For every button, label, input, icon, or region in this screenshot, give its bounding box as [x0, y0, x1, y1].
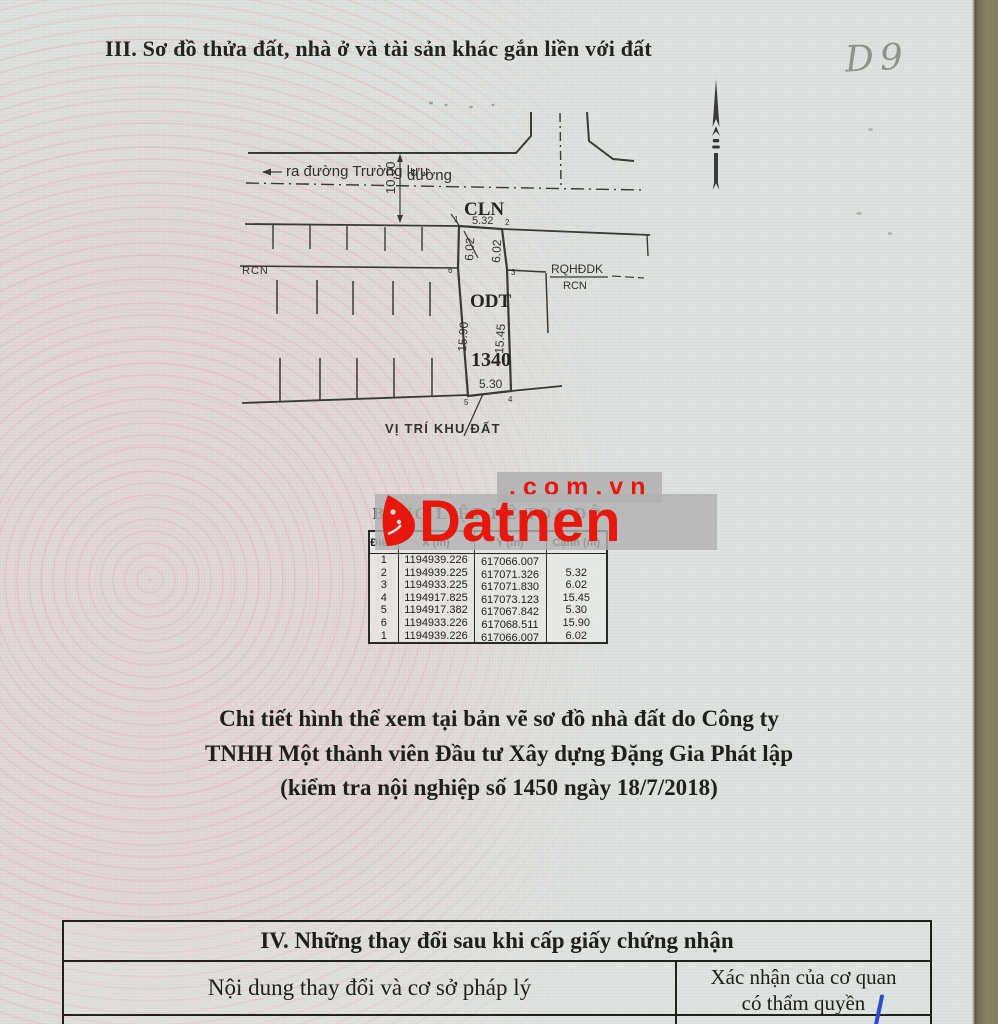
- cell-edge: 15.90: [546, 617, 607, 630]
- lot-row-top-line: [245, 224, 650, 235]
- dimension-arrow-up: [397, 154, 403, 162]
- boundary-continuation: [612, 276, 644, 278]
- table-row: 61194933.226617068.51115.90: [369, 617, 607, 630]
- edge-upper-left-dimension: 6.02: [462, 237, 477, 261]
- north-arrow-icon: [712, 79, 720, 190]
- zone-rcn-right-label: RCN: [563, 280, 587, 292]
- cell-y: 617066.007: [474, 632, 546, 646]
- cell-edge: 15.45: [546, 592, 607, 605]
- edge-top-dimension: 5.32: [472, 215, 493, 227]
- cell-y: 617066.007: [474, 556, 546, 569]
- pencil-speck: [856, 212, 862, 215]
- table-row: 41194917.825617073.12315.45: [369, 592, 607, 605]
- authority-line-2: có thẩm quyền: [677, 991, 930, 1017]
- corner-point-1: 1: [454, 215, 459, 224]
- section-iv-empty-row: [64, 1016, 930, 1024]
- cell-point: 3: [369, 579, 398, 592]
- cell-point: 1: [369, 630, 398, 644]
- table-row: 11194939.226617066.007: [369, 554, 607, 567]
- authority-line-1: Xác nhận của cơ quan: [677, 965, 930, 991]
- pencil-dots: [429, 102, 495, 109]
- paper-sheet: III. Sơ đồ thửa đất, nhà ở và tài sản kh…: [0, 0, 976, 1024]
- corner-point-6: 6: [448, 266, 453, 275]
- road-edge-top: [248, 112, 531, 153]
- corner-point-5: 5: [464, 398, 469, 407]
- section-iv-table: IV. Những thay đổi sau khi cấp giấy chứn…: [62, 920, 932, 1024]
- edge-left-dimension: 15.90: [455, 321, 471, 352]
- zone-rqhddk-label: RQHĐDK: [551, 262, 603, 276]
- watermark-band: Datnen: [375, 494, 717, 550]
- change-content-column-header: Nội dung thay đổi và cơ sở pháp lý: [64, 962, 677, 1014]
- note-line-1: Chi tiết hình thể xem tại bản vẽ sơ đồ n…: [99, 702, 899, 737]
- table-row: 31194933.225617071.8306.02: [369, 579, 607, 592]
- scanned-certificate-page: III. Sơ đồ thửa đất, nhà ở và tài sản kh…: [0, 0, 998, 1024]
- cell-y: 617067.842: [474, 606, 546, 619]
- cell-x: 1194933.226: [398, 617, 474, 630]
- cell-x: 1194933.225: [398, 579, 474, 592]
- cell-point: 2: [369, 567, 398, 580]
- table-row: 21194939.225617071.3265.32: [369, 567, 607, 580]
- cell-edge: [546, 554, 607, 567]
- bottom-boundary-right: [511, 386, 562, 391]
- road-label: đường: [407, 167, 452, 184]
- edge-bottom-dimension: 5.30: [479, 377, 503, 391]
- datnen-logo-icon: [379, 490, 421, 550]
- pencil-speck: [868, 128, 873, 131]
- road-centerline-vertical: [560, 113, 561, 187]
- authority-column-header: Xác nhận của cơ quan có thẩm quyền: [677, 962, 930, 1014]
- cell-y: 617073.123: [474, 594, 546, 607]
- cell-edge: 6.02: [546, 630, 607, 644]
- section-iv-title: IV. Những thay đổi sau khi cấp giấy chứn…: [64, 922, 930, 962]
- dimension-arrow-down: [397, 215, 403, 223]
- cell-y: 617071.326: [474, 569, 546, 582]
- cadastral-diagram: ra đường Trường lưu đường 10.00 CLN 5.32…: [230, 75, 750, 475]
- cell-y: 617071.830: [474, 581, 546, 594]
- exit-arrowhead: [262, 169, 271, 176]
- cell-point: 5: [369, 604, 398, 617]
- scan-background-edge: [977, 0, 998, 1024]
- lot-tick: [647, 235, 648, 256]
- location-label: VỊ TRÍ KHU ĐẤT: [385, 421, 501, 436]
- cell-edge: 5.32: [546, 567, 607, 580]
- note-line-3: (kiểm tra nội nghiệp số 1450 ngày 18/7/2…: [99, 771, 899, 806]
- road-centerline-horizontal: [246, 183, 642, 190]
- cell-x: 1194939.226: [398, 630, 474, 644]
- section-iii-title: III. Sơ đồ thửa đất, nhà ở và tài sản kh…: [105, 36, 652, 62]
- cell-point: 1: [369, 554, 398, 567]
- cell-point: 6: [369, 617, 398, 630]
- note-line-2: TNHH Một thành viên Đầu tư Xây dựng Đặng…: [99, 737, 899, 772]
- zone-odt-label: ODT: [470, 291, 512, 312]
- road-width-dimension: 10.00: [383, 161, 398, 194]
- cell-x: 1194917.825: [398, 592, 474, 605]
- watermark-brand-text: Datnen: [419, 488, 622, 555]
- bottom-boundary-left: [242, 395, 468, 403]
- neighbor-divider-right: [546, 273, 548, 333]
- corner-point-4: 4: [508, 395, 513, 404]
- cell-edge: 6.02: [546, 579, 607, 592]
- corner-point-2: 2: [505, 218, 510, 227]
- road-edge-right: [587, 112, 634, 161]
- rcn-boundary-left: [240, 266, 458, 268]
- datnen-watermark: .com.vn Datnen: [375, 472, 725, 552]
- zone-rcn-left-label: RCN: [242, 265, 269, 277]
- cell-y: 617068.511: [474, 619, 546, 632]
- edge-upper-right-dimension: 6.02: [489, 239, 504, 263]
- cell-x: 1194917.382: [398, 604, 474, 617]
- pencil-speck: [888, 232, 892, 235]
- corner-point-3: 3: [511, 268, 516, 277]
- survey-note: Chi tiết hình thể xem tại bản vẽ sơ đồ n…: [99, 702, 899, 806]
- cell-point: 4: [369, 592, 398, 605]
- cell-x: 1194939.225: [398, 567, 474, 580]
- table-row: 11194939.226617066.0076.02: [369, 630, 607, 644]
- cell-edge: 5.30: [546, 604, 607, 617]
- table-row: 51194917.382617067.8425.30: [369, 604, 607, 617]
- plot-number: 1340: [471, 349, 511, 371]
- cell-x: 1194939.226: [398, 554, 474, 567]
- handwritten-d9-mark: D9: [844, 36, 910, 80]
